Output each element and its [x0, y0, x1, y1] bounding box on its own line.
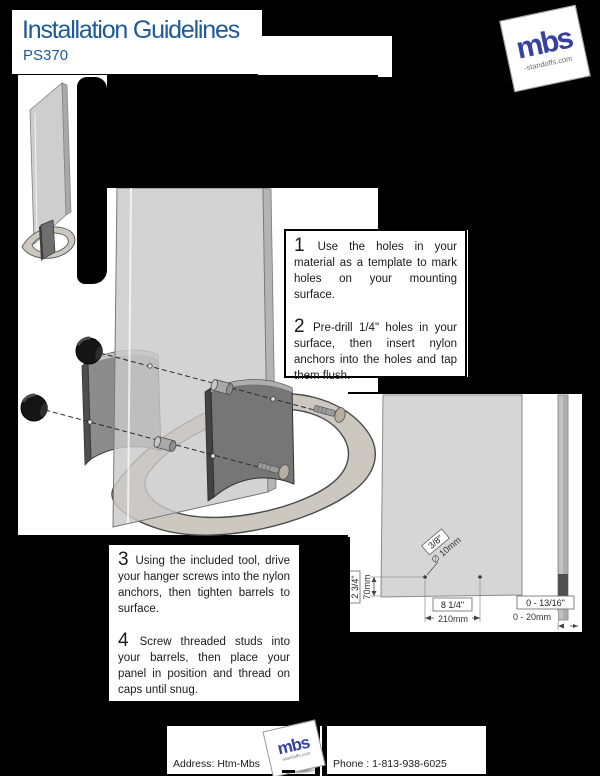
hole-mark — [211, 454, 215, 458]
vertical-dim-mm: 70mm — [362, 574, 372, 599]
step-3-number: 3 — [118, 549, 131, 570]
hole-mark — [148, 364, 152, 368]
step-1: 1 Use the holes in your material as a te… — [294, 236, 457, 303]
template-hole-right — [478, 575, 482, 579]
scan-bar-right — [77, 77, 107, 284]
step-4-number: 4 — [118, 630, 131, 651]
scan-black-region — [107, 75, 378, 188]
spacing-dim-mm: 210mm — [438, 614, 468, 624]
step-1-text: Use the holes in your material as a temp… — [294, 241, 457, 301]
template-hole-left — [423, 575, 427, 579]
footer-contact-box: Phone : 1-813-938-6025 Fax : 1-813-425-9… — [325, 724, 488, 776]
drill-template-drawing: 3/8" ∅ 10mm 2 3/4" 70mm 8 1/4" 210mm 0 -… — [348, 392, 582, 632]
thickness-dim-mm: 0 - 20mm — [513, 612, 551, 622]
footer-logo-shadow-dash — [282, 770, 295, 773]
cap-knob — [21, 395, 49, 421]
step-2-number: 2 — [294, 316, 307, 337]
document-page: Installation Guidelines PS370 mbs -stand… — [0, 0, 600, 776]
step-2: 2 Pre-drill 1/4" holes in your surface, … — [294, 317, 457, 384]
step-3: 3 Using the included tool, drive your ha… — [118, 550, 290, 617]
product-code: PS370 — [23, 47, 262, 64]
step-4-text: Screw threaded studs into your barrels, … — [118, 636, 290, 696]
step-2-text: Pre-drill 1/4" holes in your surface, th… — [294, 322, 457, 382]
step-1-number: 1 — [294, 235, 307, 256]
step-4: 4 Screw threaded studs into your barrels… — [118, 631, 290, 698]
template-border-left — [348, 537, 350, 632]
thickness-dim-in: 0 - 13/16" — [526, 598, 565, 608]
template-border-top — [348, 392, 582, 394]
header: Installation Guidelines PS370 — [12, 10, 262, 74]
hole-mark — [88, 420, 92, 424]
instructions-steps-1-2: 1 Use the holes in your material as a te… — [284, 229, 470, 378]
template-panel — [381, 395, 522, 597]
hole-mark — [271, 397, 275, 401]
brand-logo: mbs -standoffs.com — [499, 5, 590, 93]
instructions-steps-3-4: 3 Using the included tool, drive your ha… — [107, 543, 301, 703]
step-3-text: Using the included tool, drive your hang… — [118, 555, 290, 615]
logo-shadow-dash — [530, 92, 543, 95]
vertical-dim-mm-group: 70mm — [362, 574, 372, 599]
scan-bar-left — [9, 78, 18, 290]
dim-arrows-thickness — [558, 624, 578, 629]
spacing-dim-in: 8 1/4" — [441, 600, 464, 610]
page-title: Installation Guidelines — [22, 16, 262, 45]
header-spacer-box — [258, 36, 392, 77]
vertical-dim-in: 2 3/4" — [350, 575, 360, 598]
phone-line: Phone : 1-813-938-6025 — [333, 758, 480, 772]
